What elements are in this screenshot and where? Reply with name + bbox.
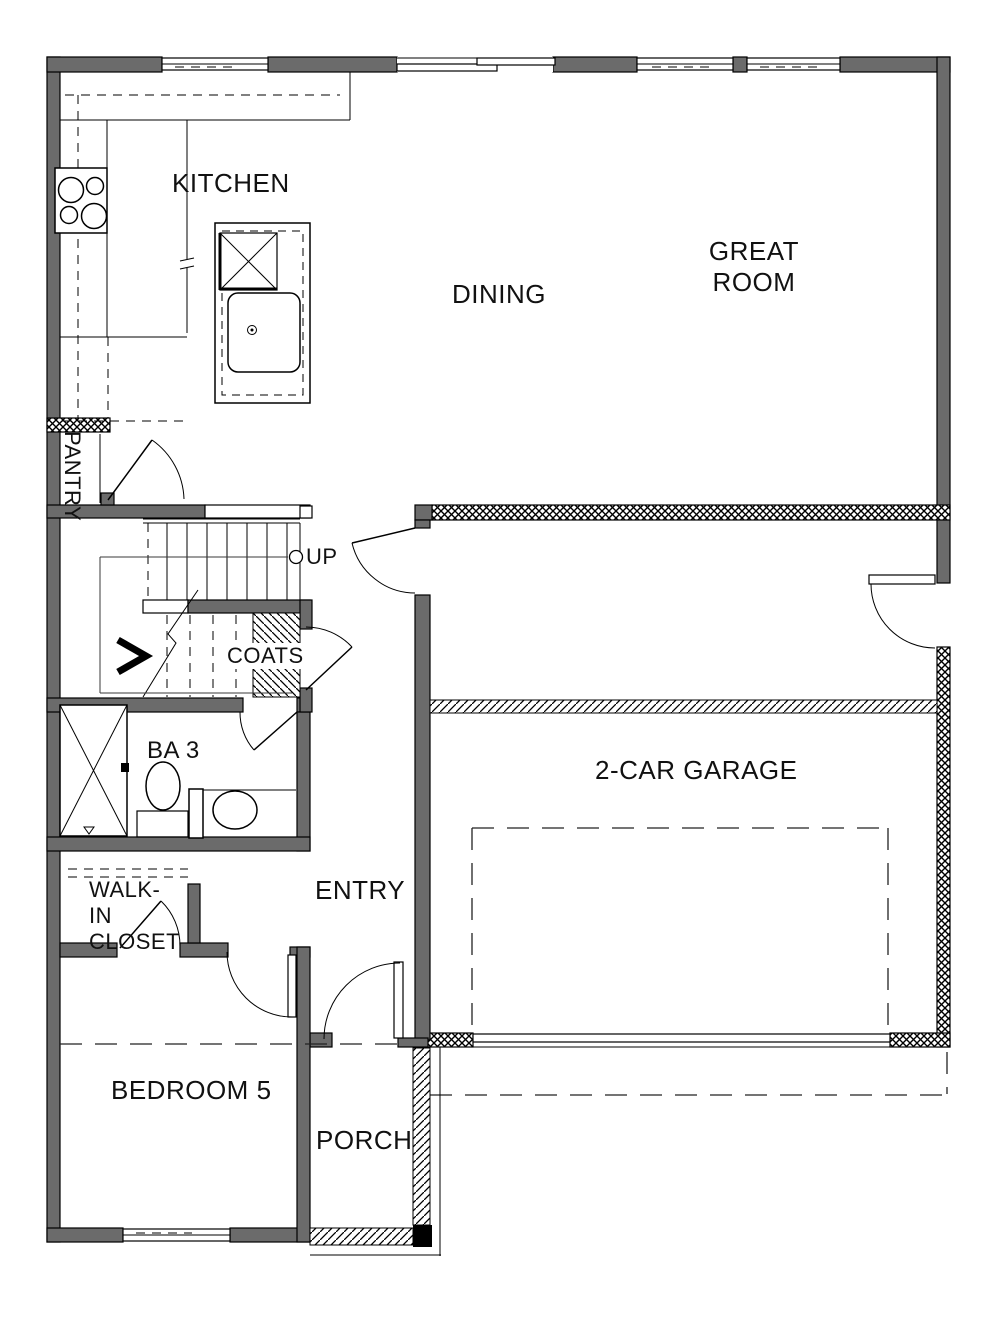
dining-label: DINING xyxy=(452,279,546,310)
dishwasher xyxy=(220,233,277,290)
up-label: UP xyxy=(306,544,338,570)
floorplan-drawing xyxy=(0,0,1000,1333)
doors xyxy=(108,440,935,1039)
closet-shelving xyxy=(68,869,188,877)
exterior-walls xyxy=(47,57,950,1242)
great-room-window-right xyxy=(747,58,840,70)
pantry-door xyxy=(108,440,184,500)
walk-in-closet-label: WALK-IN CLOSET xyxy=(89,877,181,955)
driveway-outline xyxy=(430,1052,947,1095)
garage-door xyxy=(420,1034,950,1047)
up-marker-icon xyxy=(290,551,303,564)
garage-side-door xyxy=(869,575,935,648)
coats-door xyxy=(306,627,352,690)
bath3-label: BA 3 xyxy=(147,737,200,765)
car-stall-outline xyxy=(472,828,888,1032)
porch-label: PORCH xyxy=(316,1125,412,1156)
cooktop xyxy=(55,168,107,233)
great-room-window-left xyxy=(637,58,733,70)
bedroom5-label: BEDROOM 5 xyxy=(111,1075,272,1106)
kitchen-window xyxy=(162,58,268,70)
bedroom-door xyxy=(227,952,296,1017)
kitchen-island xyxy=(215,223,310,403)
hall-to-garage-door xyxy=(352,528,415,593)
kitchen-label: KITCHEN xyxy=(172,168,290,199)
stair-direction-arrow-icon xyxy=(118,640,146,672)
sliding-patio-door xyxy=(397,57,555,72)
garage-label: 2-CAR GARAGE xyxy=(595,755,798,786)
bedroom-window xyxy=(123,1229,230,1241)
island-sink xyxy=(228,293,300,372)
vanity-sink xyxy=(137,762,188,837)
pantry-label: PANTRY xyxy=(59,431,85,507)
floorplan-page: KITCHEN DINING GREAT ROOM PANTRY UP COAT… xyxy=(0,0,1000,1333)
entry-label: ENTRY xyxy=(315,875,405,906)
great-room-label: GREAT ROOM xyxy=(688,236,820,297)
shower xyxy=(60,705,129,836)
front-door xyxy=(324,962,403,1039)
bath3-door xyxy=(240,712,297,750)
bathroom-fixtures xyxy=(60,705,296,838)
toilet xyxy=(189,789,296,838)
coats-label: COATS xyxy=(225,643,306,669)
